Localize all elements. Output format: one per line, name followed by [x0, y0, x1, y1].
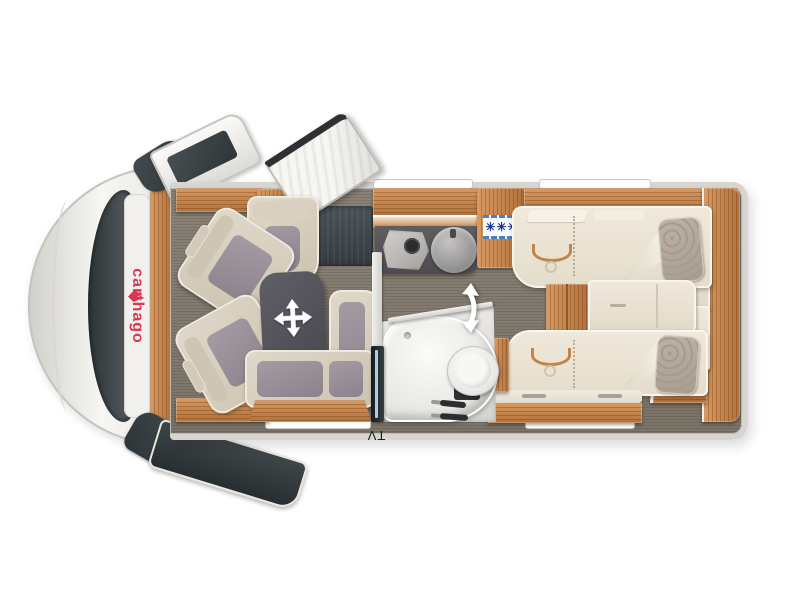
tv-panel — [371, 346, 384, 422]
kitchen-overhead — [373, 188, 479, 218]
chest-handle — [610, 304, 626, 307]
toilet-lid — [455, 352, 491, 388]
table-move-icon — [269, 294, 317, 342]
bed-steps — [546, 284, 588, 332]
cab-bonnet-line — [52, 200, 85, 412]
bed-handle-ring — [545, 261, 557, 273]
brand-logo: carthago — [128, 268, 146, 344]
bench-seat-cushion — [257, 361, 323, 397]
logo-strip: carthago — [124, 194, 150, 418]
bench-handle — [598, 394, 622, 398]
bed-bench-front — [488, 403, 642, 423]
floorplan-canvas: carthago — [0, 0, 800, 600]
tv-label: TV — [356, 428, 396, 443]
cab-door-window — [166, 129, 238, 185]
bed-handle-ring — [544, 365, 556, 377]
shower-drain — [404, 332, 411, 339]
bed-divider-dotted — [573, 216, 575, 276]
bench-handle — [522, 394, 546, 398]
dinette-seat-backrest — [253, 201, 309, 221]
bench-base — [249, 400, 371, 422]
window-top-right — [540, 180, 650, 188]
bed-locker-flap — [593, 210, 645, 220]
bench-seat-section — [245, 350, 375, 408]
door-top-rail — [374, 180, 472, 188]
chest-divider — [656, 284, 658, 328]
bed-bench-top — [488, 390, 642, 403]
step-divider — [566, 284, 568, 332]
pillow — [654, 335, 700, 396]
bed-locker-flap — [527, 210, 588, 222]
sink-faucet — [450, 229, 456, 238]
hob-burner — [404, 238, 420, 254]
pillow — [657, 216, 704, 283]
bathroom-wall — [372, 252, 382, 348]
bedside-chest — [588, 280, 696, 336]
swivel-wall-arrow-icon — [438, 280, 490, 336]
bed-divider-dotted — [573, 340, 575, 388]
tv-screen-edge — [375, 350, 378, 418]
bench-seat-cushion — [329, 361, 363, 397]
